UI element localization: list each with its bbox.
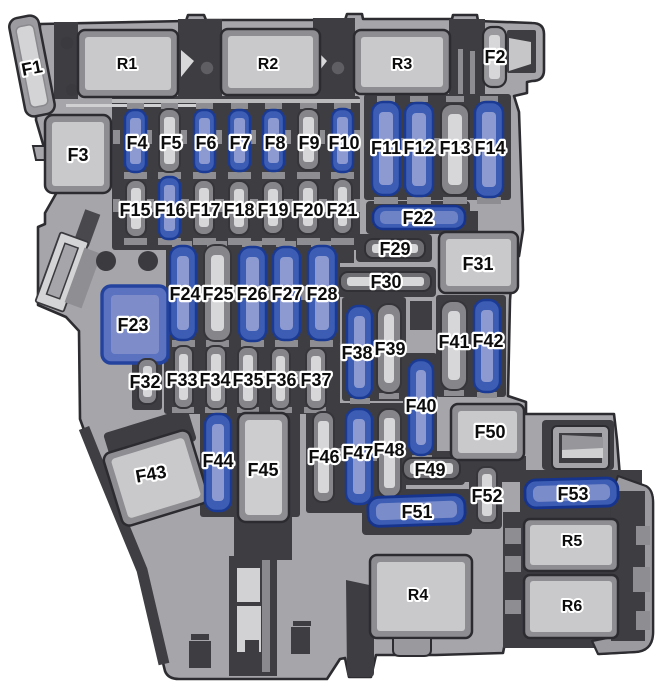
svg-text:F18: F18 [223, 200, 254, 220]
svg-text:F26: F26 [236, 284, 267, 304]
svg-text:R6: R6 [562, 598, 583, 615]
svg-text:F11: F11 [371, 138, 401, 158]
svg-text:R5: R5 [562, 533, 583, 550]
svg-text:R3: R3 [392, 56, 413, 73]
svg-text:F14: F14 [474, 138, 505, 158]
svg-text:F22: F22 [402, 208, 433, 228]
svg-text:F42: F42 [472, 331, 503, 351]
svg-text:F16: F16 [154, 200, 185, 220]
svg-text:F41: F41 [438, 332, 469, 352]
svg-text:F52: F52 [471, 486, 502, 506]
svg-text:F8: F8 [264, 133, 285, 153]
svg-text:F3: F3 [67, 145, 88, 165]
svg-text:F38: F38 [341, 343, 372, 363]
svg-text:F31: F31 [462, 254, 493, 274]
svg-text:F1: F1 [20, 56, 44, 80]
svg-text:F17: F17 [189, 200, 220, 220]
svg-text:F37: F37 [300, 370, 331, 390]
svg-text:F47: F47 [342, 443, 373, 463]
svg-text:F45: F45 [247, 460, 278, 480]
svg-text:F36: F36 [265, 370, 296, 390]
svg-text:R1: R1 [117, 56, 138, 73]
svg-text:F10: F10 [328, 133, 359, 153]
svg-text:F34: F34 [199, 370, 230, 390]
svg-text:F21: F21 [326, 200, 357, 220]
svg-text:F5: F5 [160, 133, 181, 153]
svg-text:F24: F24 [169, 284, 200, 304]
svg-text:F32: F32 [129, 372, 160, 392]
svg-text:F30: F30 [370, 272, 401, 292]
svg-text:F15: F15 [119, 200, 150, 220]
svg-text:F4: F4 [126, 133, 147, 153]
svg-text:F49: F49 [414, 460, 445, 480]
svg-text:R2: R2 [258, 56, 279, 73]
svg-text:F19: F19 [257, 200, 288, 220]
svg-text:R4: R4 [408, 587, 429, 604]
svg-text:F46: F46 [308, 447, 339, 467]
svg-text:F53: F53 [557, 484, 588, 504]
svg-text:F13: F13 [439, 138, 470, 158]
svg-text:F20: F20 [292, 200, 323, 220]
svg-text:F48: F48 [373, 440, 404, 460]
svg-text:F29: F29 [379, 239, 410, 259]
svg-text:F39: F39 [374, 339, 405, 359]
svg-text:F23: F23 [117, 315, 148, 335]
svg-text:F2: F2 [484, 47, 505, 67]
svg-text:F51: F51 [401, 502, 432, 522]
svg-text:F40: F40 [405, 396, 436, 416]
svg-text:F28: F28 [306, 284, 337, 304]
svg-text:F9: F9 [298, 133, 319, 153]
svg-text:F25: F25 [202, 284, 233, 304]
svg-text:F35: F35 [232, 370, 263, 390]
svg-text:F12: F12 [403, 138, 434, 158]
svg-text:F7: F7 [229, 133, 250, 153]
svg-text:F50: F50 [474, 422, 505, 442]
svg-text:F6: F6 [195, 133, 216, 153]
svg-text:F44: F44 [202, 451, 233, 471]
svg-text:F27: F27 [271, 284, 302, 304]
svg-text:F33: F33 [166, 370, 197, 390]
